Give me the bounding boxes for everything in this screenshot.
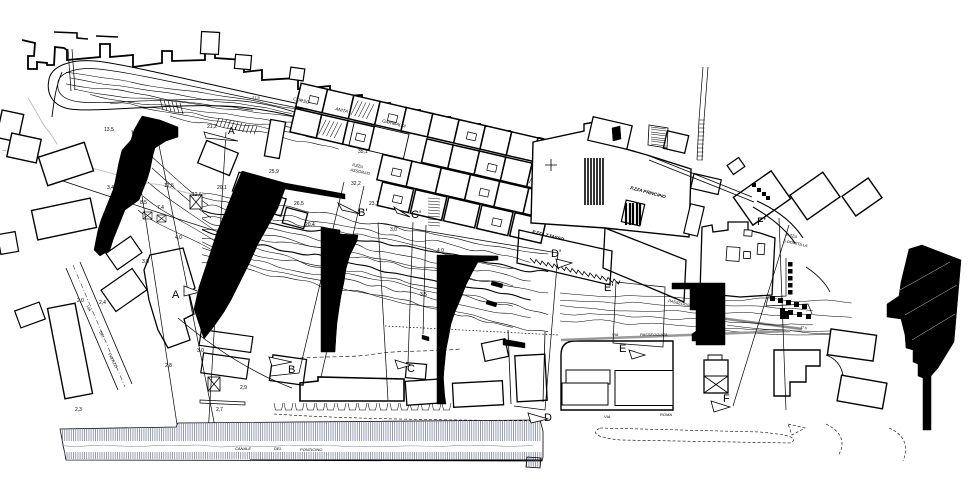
- svg-text:B: B: [288, 364, 295, 376]
- svg-text:21,2: 21,2: [207, 124, 217, 130]
- svg-text:3,4: 3,4: [107, 185, 114, 191]
- svg-text:2,3: 2,3: [75, 407, 82, 413]
- svg-text:VIA: VIA: [612, 332, 619, 337]
- svg-text:ROMA: ROMA: [660, 412, 672, 417]
- svg-text:DEL: DEL: [274, 446, 282, 451]
- svg-text:27,9: 27,9: [252, 95, 261, 100]
- svg-text:PASSEGGIATA: PASSEGGIATA: [640, 332, 668, 337]
- svg-text:VIA: VIA: [604, 414, 611, 419]
- svg-text:E: E: [619, 343, 626, 355]
- svg-text:E': E': [604, 282, 613, 294]
- svg-text:12,6: 12,6: [192, 192, 202, 198]
- svg-text:3,0: 3,0: [142, 259, 149, 265]
- svg-text:26,5: 26,5: [294, 201, 304, 207]
- svg-text:4,0: 4,0: [437, 248, 444, 254]
- svg-text:35,1: 35,1: [358, 149, 368, 155]
- svg-text:23,1: 23,1: [369, 201, 379, 207]
- svg-text:8,5: 8,5: [140, 200, 147, 206]
- svg-text:3,5: 3,5: [217, 288, 224, 294]
- svg-text:B': B': [358, 207, 367, 219]
- svg-text:12,5: 12,5: [164, 183, 174, 189]
- svg-text:20,1: 20,1: [217, 185, 227, 191]
- svg-text:D': D': [551, 248, 561, 260]
- svg-text:PONTICINO: PONTICINO: [300, 447, 322, 452]
- svg-text:C': C': [411, 209, 421, 221]
- svg-text:CANALE: CANALE: [235, 446, 251, 451]
- svg-text:32,2: 32,2: [351, 181, 361, 187]
- svg-text:4,0: 4,0: [233, 240, 240, 246]
- svg-text:25,9: 25,9: [269, 169, 279, 175]
- svg-text:2,0: 2,0: [77, 298, 84, 304]
- svg-text:7,4: 7,4: [157, 205, 164, 211]
- svg-text:3,5: 3,5: [420, 292, 427, 298]
- svg-text:2,9: 2,9: [240, 385, 247, 391]
- svg-text:4,0: 4,0: [175, 235, 182, 241]
- svg-text:20,4: 20,4: [305, 222, 315, 228]
- svg-text:F: F: [723, 393, 730, 405]
- svg-text:2,7: 2,7: [216, 407, 223, 413]
- svg-text:3,0: 3,0: [390, 227, 397, 233]
- svg-text:A: A: [172, 289, 180, 301]
- svg-text:2,4: 2,4: [99, 300, 106, 306]
- svg-text:A': A': [228, 126, 237, 137]
- svg-text:3,0: 3,0: [197, 348, 204, 354]
- svg-text:13,5: 13,5: [104, 127, 114, 133]
- svg-text:F': F': [757, 216, 766, 228]
- svg-text:2,8: 2,8: [165, 363, 172, 369]
